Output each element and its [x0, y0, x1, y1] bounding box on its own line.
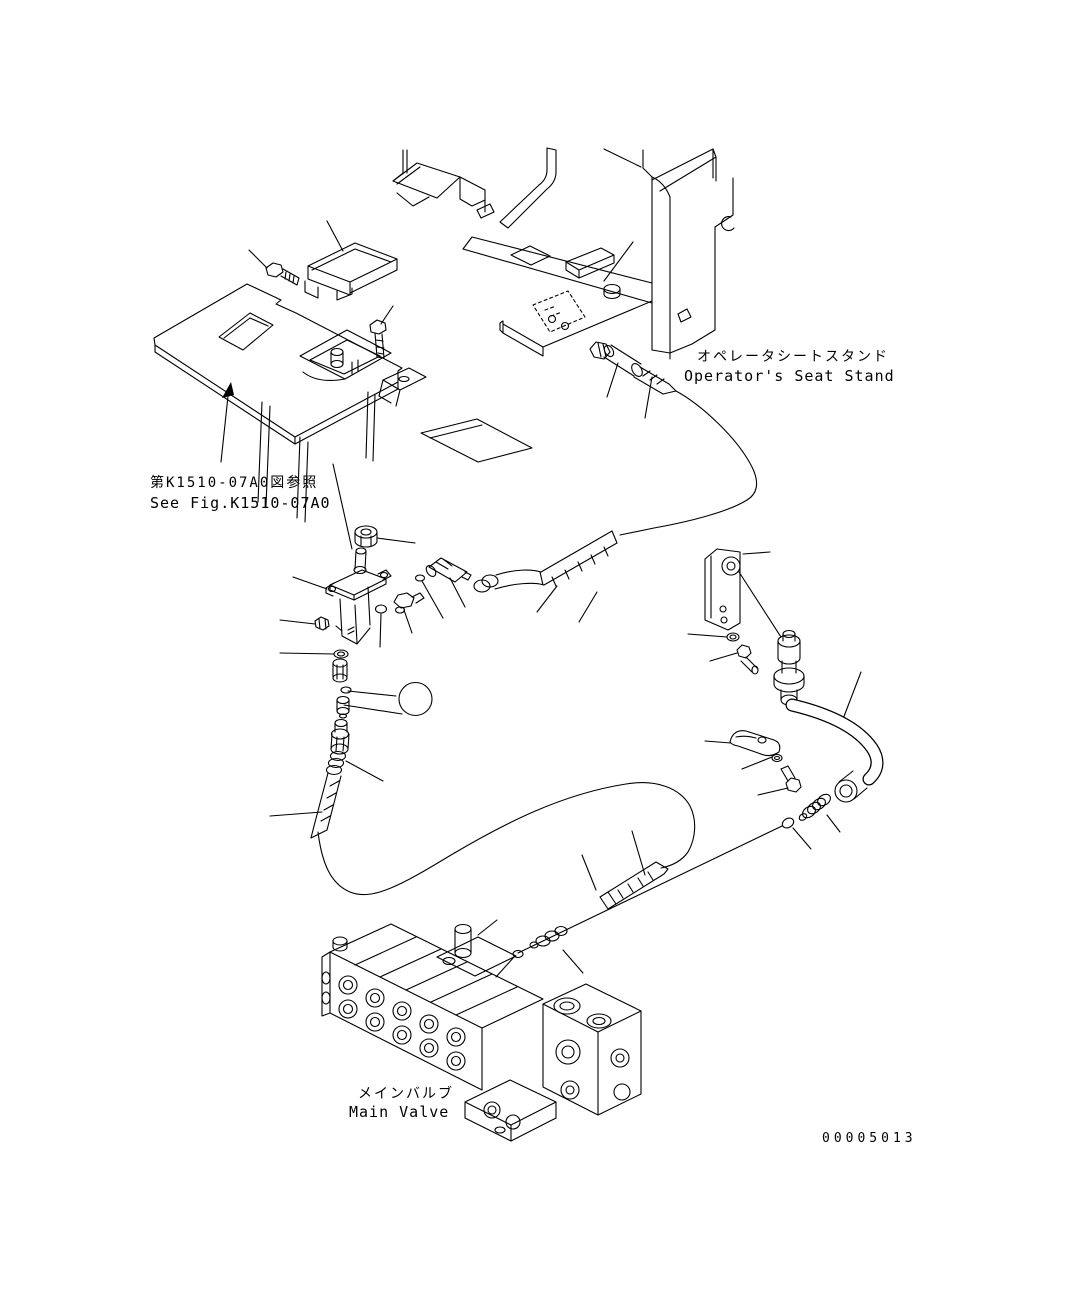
- valve-right-block: [543, 984, 641, 1115]
- right-fitting-group: [496, 549, 877, 977]
- seat-stand-label-jp: オペレータシートスタンド: [697, 349, 889, 365]
- callout-13[interactable]: 13: [344, 683, 432, 716]
- reference-arrow: [221, 396, 228, 462]
- middle-hose: [474, 531, 617, 592]
- seat-stand-hose-fitting: [590, 342, 676, 394]
- seat-stand-frame: [393, 148, 757, 535]
- mount-bracket: [705, 549, 740, 630]
- o-ring-item: [341, 687, 351, 693]
- pilot-valve-assembly: [270, 464, 617, 838]
- clamp-bolt: [781, 766, 801, 792]
- hose-clamp: [730, 731, 780, 756]
- hose-loop: [318, 783, 695, 973]
- solenoid-valve: [424, 558, 471, 582]
- callout-number: 13: [407, 692, 424, 708]
- bolt-1: [266, 263, 299, 285]
- cover-bracket: [305, 243, 397, 300]
- bracket-bolt: [737, 645, 758, 674]
- seat-stand-label-en: Operator's Seat Stand: [684, 367, 895, 385]
- parts-diagram-page: 13: [0, 0, 1065, 1294]
- pilot-valve-body: [326, 570, 391, 644]
- reference-note-en: See Fig.K1510-07A0: [150, 494, 331, 512]
- drawing-number: 00005013: [822, 1131, 917, 1146]
- main-valve-label-jp: メインバルブ: [358, 1085, 454, 1102]
- main-valve-label-en: Main Valve: [349, 1103, 449, 1121]
- lock-nut: [355, 526, 377, 547]
- exploded-parts-drawing: 13: [0, 0, 1065, 1294]
- valve-ports: [339, 976, 465, 1070]
- hose-end-fittings: [781, 771, 867, 830]
- lower-left-hose: [311, 720, 349, 839]
- fitting-chain: [333, 650, 351, 718]
- pilot-hose-route-upper: [620, 391, 757, 535]
- elbow-fitting: [394, 593, 424, 613]
- reference-note-jp: 第K1510-07A0図参照: [150, 474, 318, 491]
- valve-lower-block: [465, 1080, 556, 1141]
- damper-valve: [774, 631, 804, 706]
